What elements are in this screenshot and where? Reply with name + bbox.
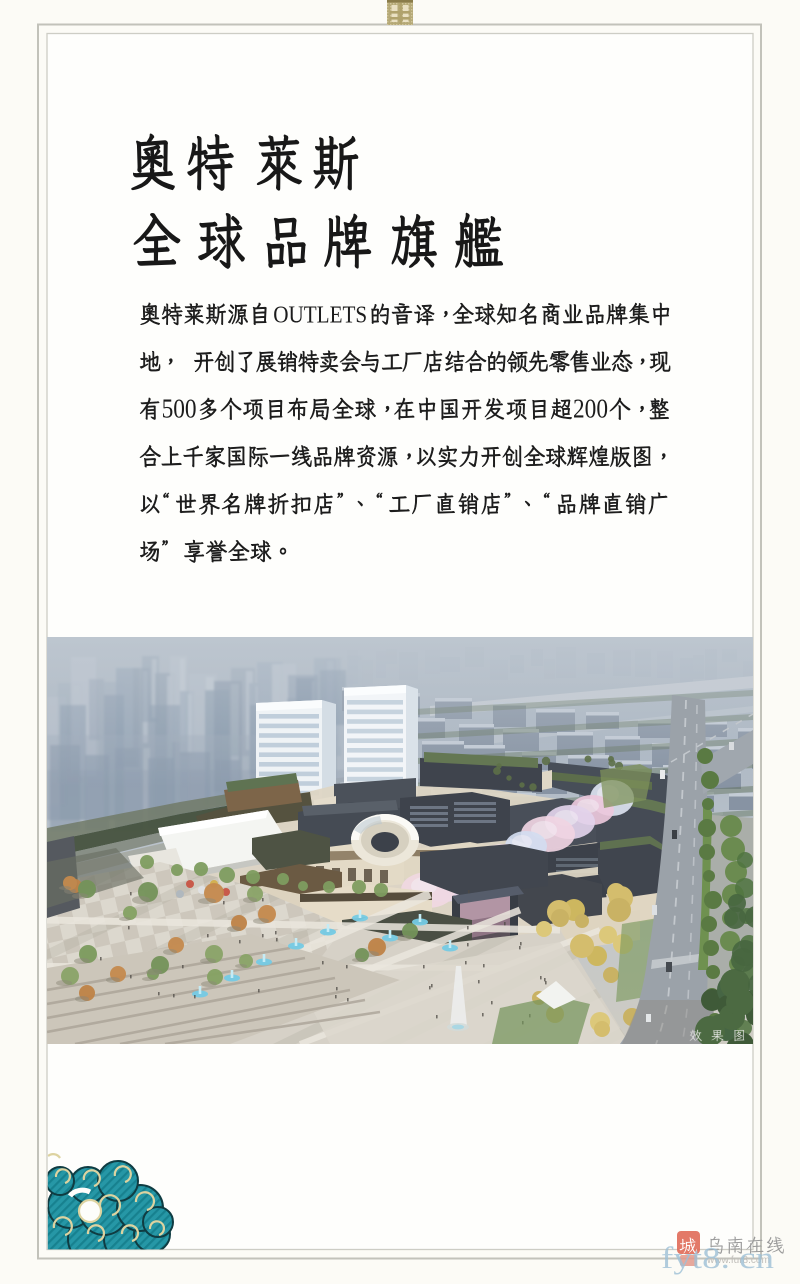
svg-text:500: 500 xyxy=(162,393,197,423)
svg-text:fyt8. cn: fyt8. cn xyxy=(661,1240,775,1275)
svg-text:200: 200 xyxy=(573,393,608,423)
svg-text:OUTLETS: OUTLETS xyxy=(273,303,367,329)
